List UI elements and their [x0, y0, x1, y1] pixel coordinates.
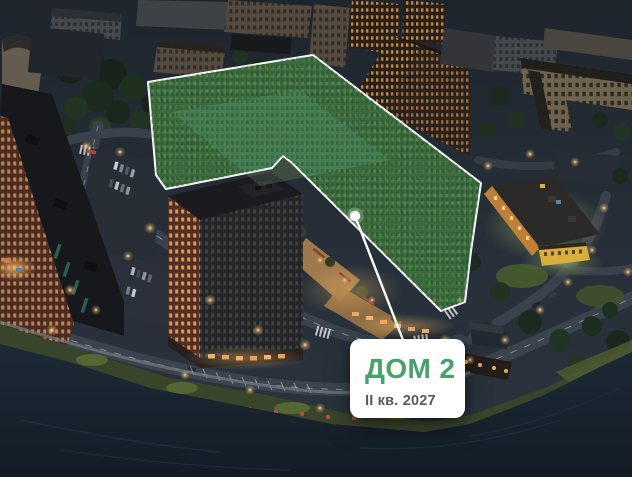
building-name-label: ДОМ 2: [365, 355, 457, 384]
foreground-tower: [168, 172, 307, 370]
building-info-card[interactable]: ДОМ 2 II кв. 2027: [350, 339, 465, 418]
aerial-render: [0, 0, 632, 477]
completion-date-label: II кв. 2027: [365, 393, 457, 409]
masterplan-view: ДОМ 2 II кв. 2027: [0, 0, 632, 477]
location-marker-dot[interactable]: [350, 211, 360, 221]
